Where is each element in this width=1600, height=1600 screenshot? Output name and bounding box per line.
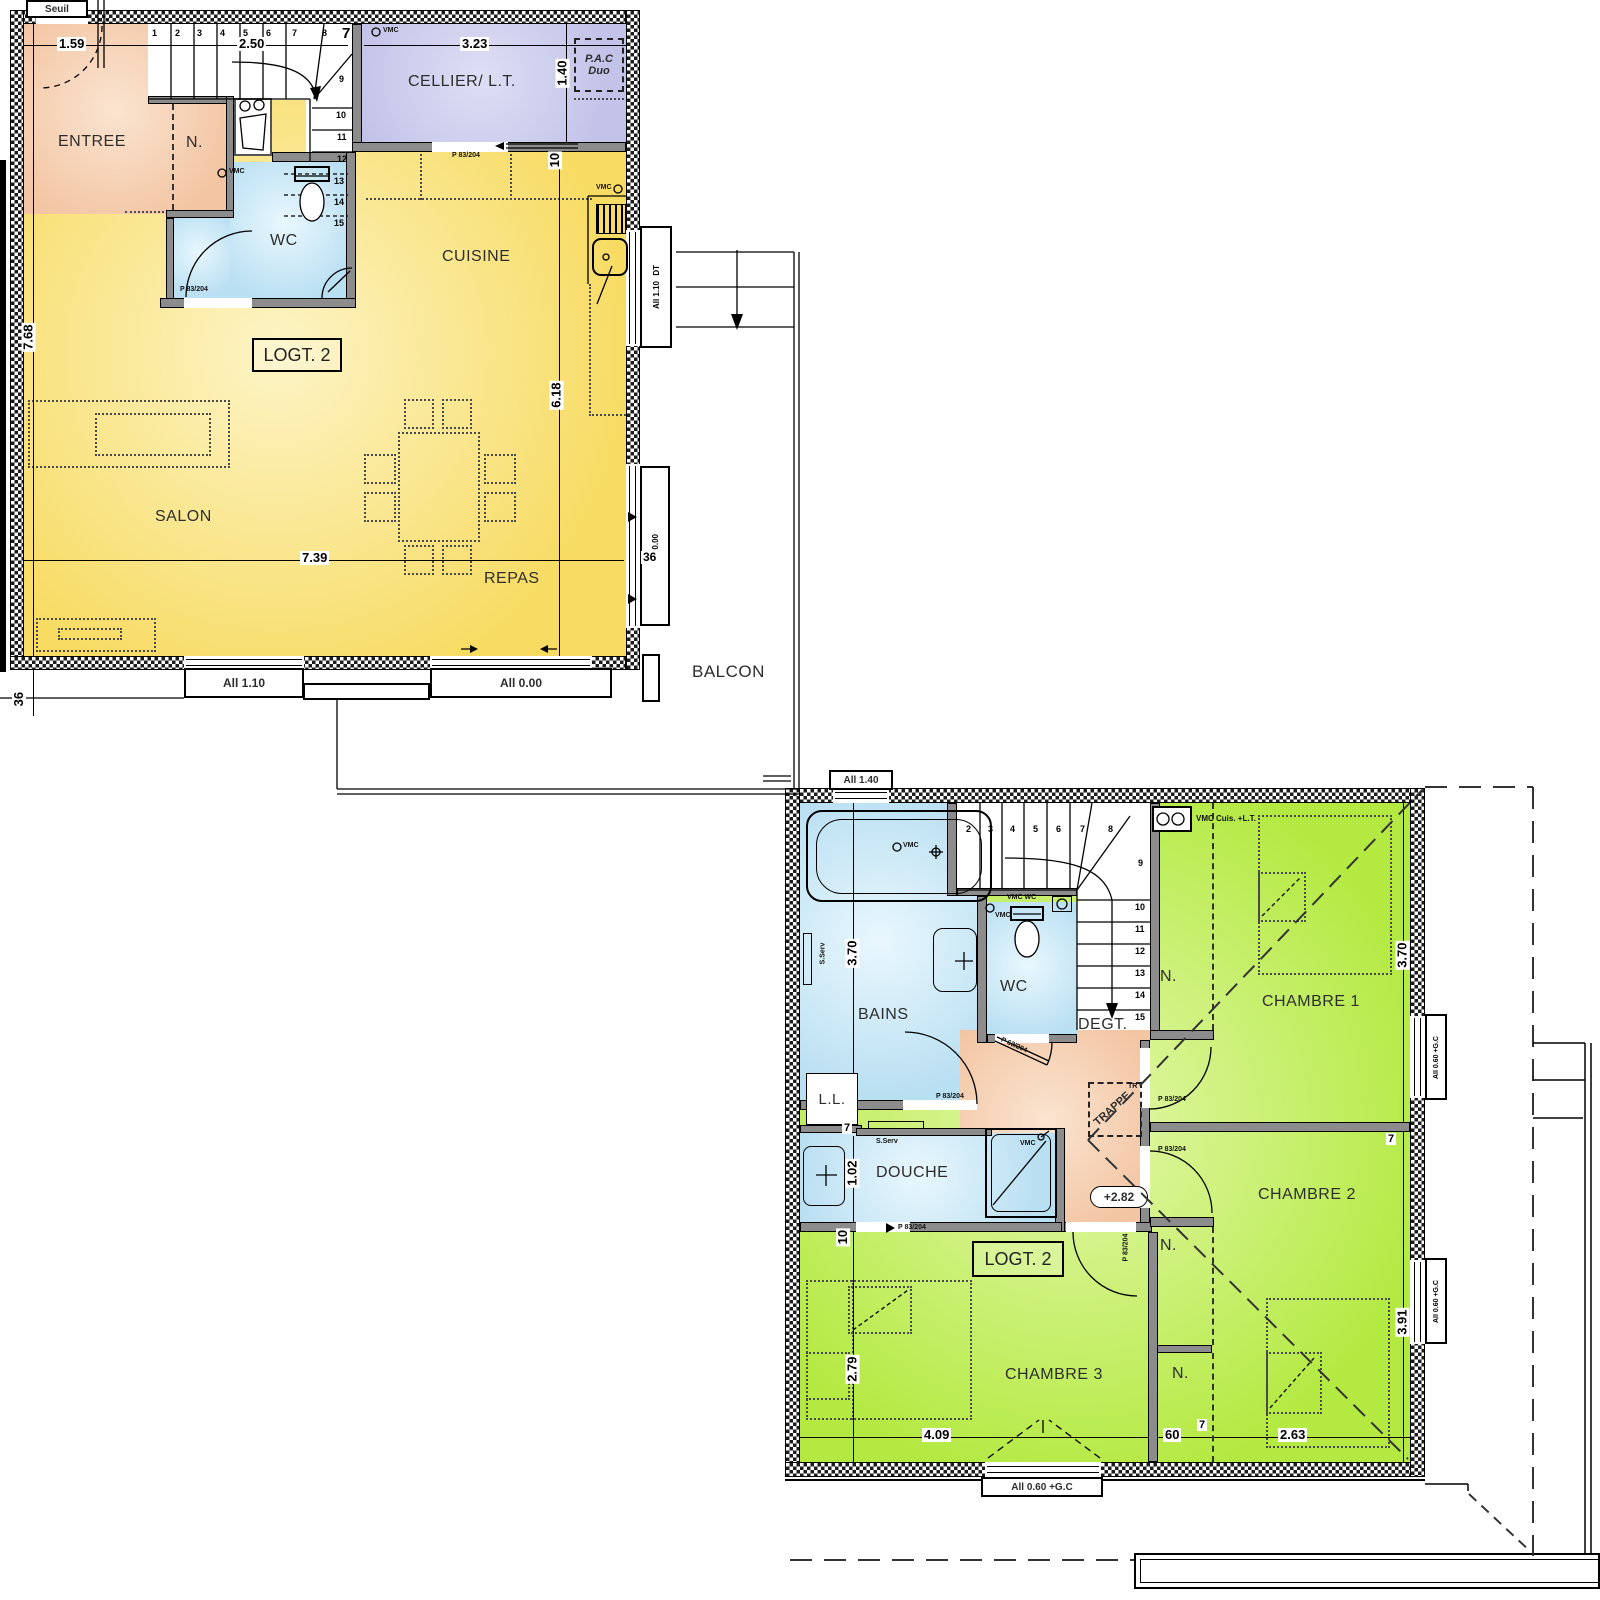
room-label-ch3: CHAMBRE 3 bbox=[1005, 1366, 1103, 1384]
door-label-ch3: P 83/204 bbox=[1122, 1234, 1129, 1262]
stair-number: 7 bbox=[292, 28, 297, 38]
room-label-douche: DOUCHE bbox=[876, 1164, 948, 1182]
room-label-cuisine: CUISINE bbox=[442, 248, 510, 266]
dim-370-ch1: 3.70 bbox=[1396, 940, 1410, 969]
stair-number: 1 bbox=[152, 28, 157, 38]
stair-number: 11 bbox=[1135, 924, 1145, 934]
stair-number: 9 bbox=[1138, 858, 1143, 868]
room-label-wc2: WC bbox=[1000, 978, 1028, 996]
logt-label: LOGT. 2 bbox=[984, 1249, 1051, 1270]
stair-number: 7 bbox=[1080, 824, 1085, 834]
stair-number: 3 bbox=[988, 824, 993, 834]
door-label-bains: P 83/204 bbox=[936, 1093, 964, 1100]
dim-323: 3.23 bbox=[460, 37, 489, 51]
dim-7: 7 bbox=[340, 26, 352, 43]
stair-number: 10 bbox=[1135, 902, 1145, 912]
dim-102: 1.02 bbox=[846, 1158, 860, 1187]
stair-number: 10 bbox=[336, 110, 346, 120]
dim-370-bains: 3.70 bbox=[846, 938, 860, 967]
stair-number: 4 bbox=[1010, 824, 1015, 834]
stair-number: 12 bbox=[337, 154, 347, 164]
dim-739: 7.39 bbox=[300, 551, 329, 565]
sserv-label: S.Serv bbox=[819, 943, 826, 965]
stair-number: 2 bbox=[175, 28, 180, 38]
dim-279: 2.79 bbox=[846, 1354, 860, 1383]
room-label-wc: WC bbox=[270, 232, 298, 250]
room-label-cellier: CELLIER/ L.T. bbox=[408, 73, 516, 91]
dim-159: 1.59 bbox=[57, 37, 86, 51]
labels: ENTREE N. WC CELLIER/ L.T. CUISINE SALON… bbox=[0, 0, 1600, 1600]
stair-number: 13 bbox=[334, 176, 344, 186]
dim-250: 2.50 bbox=[237, 37, 266, 51]
sserv-label: S.Serv bbox=[876, 1138, 898, 1145]
dim-409: 4.09 bbox=[922, 1428, 951, 1442]
dim-7-douche: 7 bbox=[842, 1122, 852, 1134]
stair-number: 15 bbox=[1135, 1012, 1145, 1022]
dim-768: 7.68 bbox=[22, 322, 36, 351]
logt-box-ground: LOGT. 2 bbox=[252, 338, 342, 372]
room-label-repas: REPAS bbox=[484, 570, 540, 588]
stair-number: 9 bbox=[339, 74, 344, 84]
room-label-bains: BAINS bbox=[858, 1006, 909, 1024]
vmc-label: VMC bbox=[596, 184, 612, 191]
stair-number: 15 bbox=[334, 218, 344, 228]
stair-number: 5 bbox=[1033, 824, 1038, 834]
dim-10b: 10 bbox=[836, 1228, 850, 1246]
vmc-label: VMC bbox=[1020, 1140, 1036, 1147]
room-label-ch2: CHAMBRE 2 bbox=[1258, 1186, 1356, 1204]
stair-number: 11 bbox=[337, 132, 347, 142]
vmc-label: VMC bbox=[383, 27, 399, 34]
stair-number: 2 bbox=[966, 824, 971, 834]
room-label-ch1: CHAMBRE 1 bbox=[1262, 993, 1360, 1011]
door-label-wc: P 83/204 bbox=[180, 286, 208, 293]
dim-263: 2.63 bbox=[1278, 1428, 1307, 1442]
vmc-label: VMC bbox=[229, 168, 245, 175]
closet-label: N. bbox=[1172, 1365, 1189, 1383]
floorplan-canvas: Seuil All 1.10 All 0.00 DT All 1.10 A 0.… bbox=[0, 0, 1600, 1600]
stair-number: 5 bbox=[243, 28, 248, 38]
stair-number: 14 bbox=[334, 197, 344, 207]
stair-number: 4 bbox=[220, 28, 225, 38]
dim-7-bottom: 7 bbox=[1197, 1419, 1207, 1431]
trappe-label: TRAPPE bbox=[1092, 1090, 1133, 1129]
closet-label: N. bbox=[1160, 1237, 1177, 1255]
stair-number: 14 bbox=[1135, 990, 1145, 1000]
dim-36-right: 36 bbox=[641, 551, 658, 564]
door-label-wc2: P 63/204 bbox=[1000, 1037, 1028, 1055]
vmc-label: VMC bbox=[903, 842, 919, 849]
balcony-label: BALCON bbox=[692, 662, 765, 682]
room-label-closet: N. bbox=[186, 134, 203, 152]
stair-number: 12 bbox=[1135, 946, 1145, 956]
room-label-entree: ENTREE bbox=[58, 133, 126, 151]
vmc-wc-label: VMC WC bbox=[1007, 894, 1036, 901]
door-label-douche: P 83/204 bbox=[898, 1224, 926, 1231]
room-label-degt: DEGT. bbox=[1078, 1016, 1128, 1034]
tr-label: TR bbox=[1128, 1083, 1137, 1090]
dim-391: 3.91 bbox=[1396, 1307, 1410, 1336]
dim-140: 1.40 bbox=[556, 58, 570, 87]
dim-60: 60 bbox=[1163, 1428, 1181, 1442]
dim-618: 6.18 bbox=[550, 380, 564, 409]
vmc-cuis-label: VMC Cuis. +L.T. bbox=[1196, 814, 1256, 823]
dim-36-left: 36 bbox=[12, 690, 26, 708]
logt-label: LOGT. 2 bbox=[263, 345, 330, 366]
stair-number: 3 bbox=[197, 28, 202, 38]
room-label-salon: SALON bbox=[155, 508, 212, 526]
stair-number: 6 bbox=[266, 28, 271, 38]
closet-label: N. bbox=[1160, 968, 1177, 986]
door-label-ch2: P 83/204 bbox=[1158, 1146, 1186, 1153]
stair-number: 8 bbox=[322, 28, 327, 38]
stair-number: 6 bbox=[1056, 824, 1061, 834]
dim-10: 10 bbox=[548, 151, 562, 169]
stair-number: 13 bbox=[1135, 968, 1145, 978]
logt-box-upper: LOGT. 2 bbox=[972, 1241, 1064, 1277]
door-label-ch1: P 83/204 bbox=[1158, 1096, 1186, 1103]
vmc-label: VMC bbox=[995, 912, 1011, 919]
stair-number: 8 bbox=[1108, 824, 1113, 834]
dim-7-ch2: 7 bbox=[1386, 1133, 1396, 1145]
door-label-cellier: P 83/204 bbox=[452, 152, 480, 159]
